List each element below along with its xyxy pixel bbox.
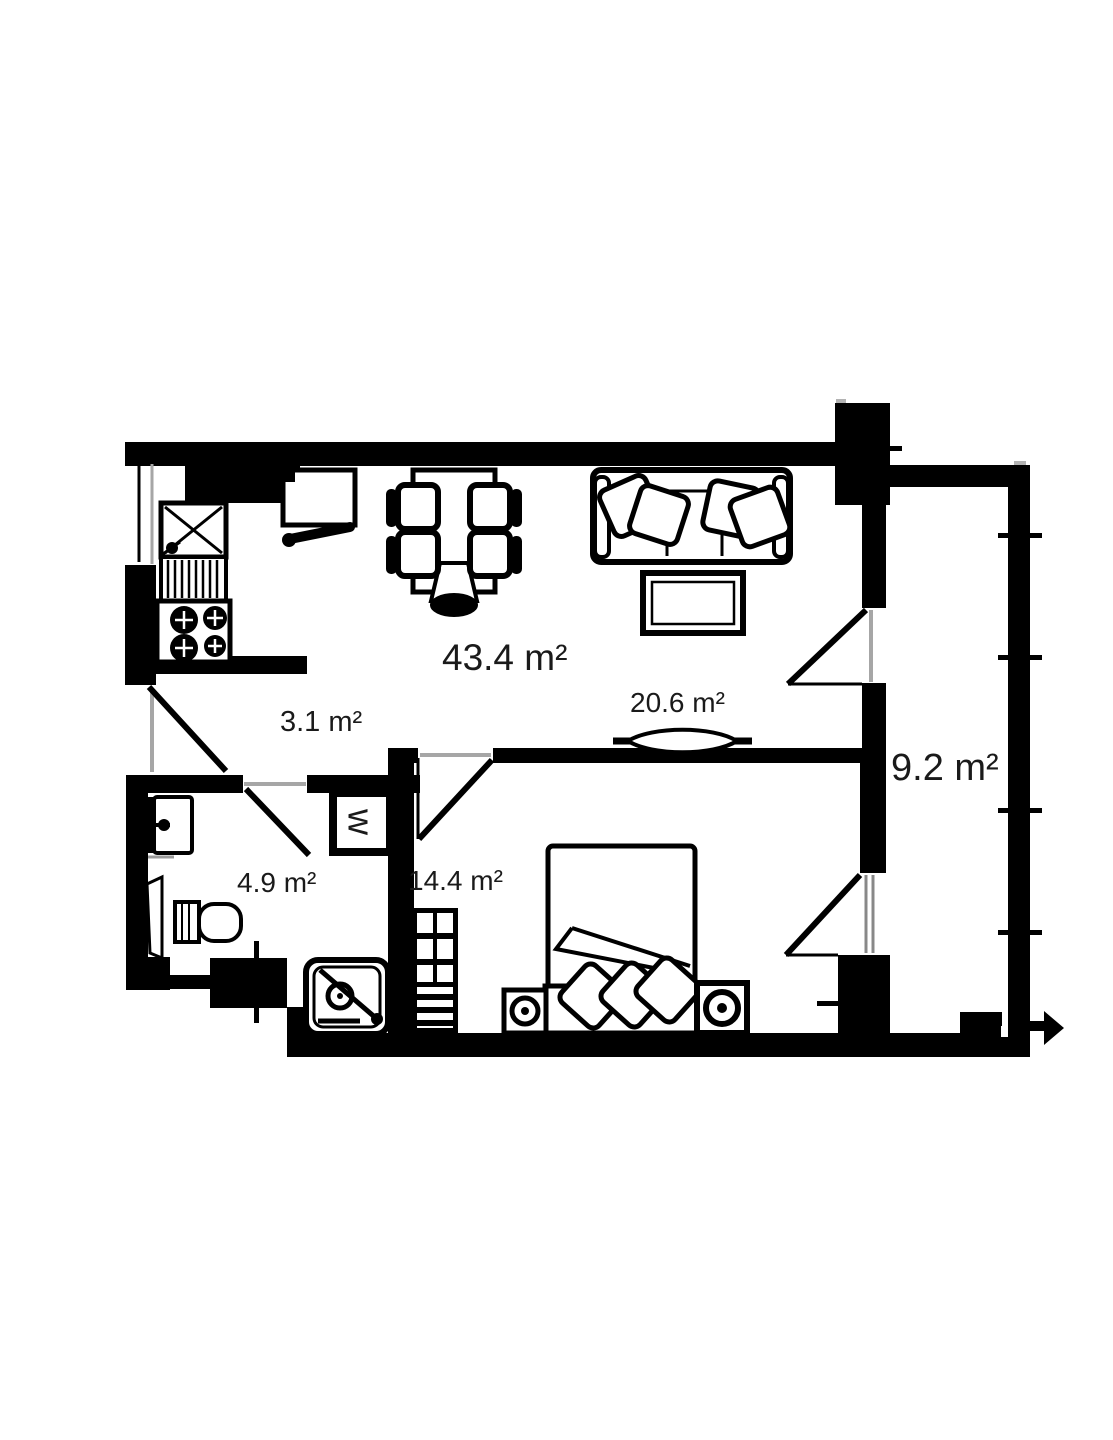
shower-icon bbox=[306, 960, 388, 1034]
living-balcony-door-swing-icon bbox=[788, 610, 866, 684]
table-base bbox=[430, 593, 478, 617]
toilet-icon bbox=[175, 902, 241, 942]
balcony-corner-speck bbox=[1014, 461, 1026, 465]
bottom-wall bbox=[287, 1033, 1030, 1057]
bathroom-top-wall-left bbox=[126, 775, 243, 793]
nightstand-icon bbox=[697, 983, 747, 1033]
bedroom-balcony-pier bbox=[838, 955, 890, 1038]
vent-niche bbox=[147, 877, 162, 958]
washer-label: w bbox=[341, 808, 382, 836]
top-wall bbox=[125, 442, 890, 466]
wall-notch bbox=[1001, 1026, 1008, 1037]
bed-icon bbox=[545, 846, 703, 1033]
cabinet-corner bbox=[283, 470, 295, 482]
room-label-hallway: 3.1 m² bbox=[280, 706, 363, 738]
floor-plan-canvas: w bbox=[0, 0, 1113, 1440]
wardrobe-icon bbox=[412, 908, 458, 1033]
living-balcony-wall-lower bbox=[862, 683, 886, 763]
room-label-living: 43.4 m² bbox=[442, 637, 567, 678]
cabinet-door-hinge bbox=[282, 533, 296, 547]
pillar-speck bbox=[836, 399, 846, 403]
pillar bbox=[835, 403, 890, 505]
living-balcony-wall-upper bbox=[862, 505, 886, 608]
sofa-icon bbox=[593, 470, 792, 562]
bedroom-door-swing-icon bbox=[419, 760, 492, 839]
balcony-bottom-block bbox=[960, 1012, 1002, 1038]
bedroom-balcony-wall bbox=[860, 763, 886, 873]
bedroom-balcony-door-swing-icon bbox=[786, 875, 860, 955]
bathroom-door-swing-icon bbox=[246, 789, 309, 855]
room-label-living-zone: 20.6 m² bbox=[630, 687, 725, 718]
entry-door-swing-icon bbox=[149, 687, 226, 771]
nightstand-icon bbox=[504, 990, 546, 1033]
bathroom-bottom-bar bbox=[130, 975, 215, 989]
room-label-bedroom: 14.4 m² bbox=[408, 865, 503, 896]
floor-plan-drawing: w bbox=[0, 0, 1113, 1440]
entry-arrow-icon bbox=[1028, 1011, 1064, 1045]
room-label-balcony: 9.2 m² bbox=[891, 747, 999, 789]
washbasin-faucet-dot bbox=[158, 819, 170, 831]
washer-niche: w bbox=[333, 793, 390, 852]
cabinet-door bbox=[290, 527, 350, 539]
balcony-right-wall bbox=[1008, 465, 1030, 1057]
left-wall-upper bbox=[125, 442, 156, 462]
room-label-bathroom: 4.9 m² bbox=[237, 867, 316, 898]
living-bedroom-wall-left bbox=[388, 748, 418, 763]
bathroom-bottom-block bbox=[210, 958, 287, 1008]
